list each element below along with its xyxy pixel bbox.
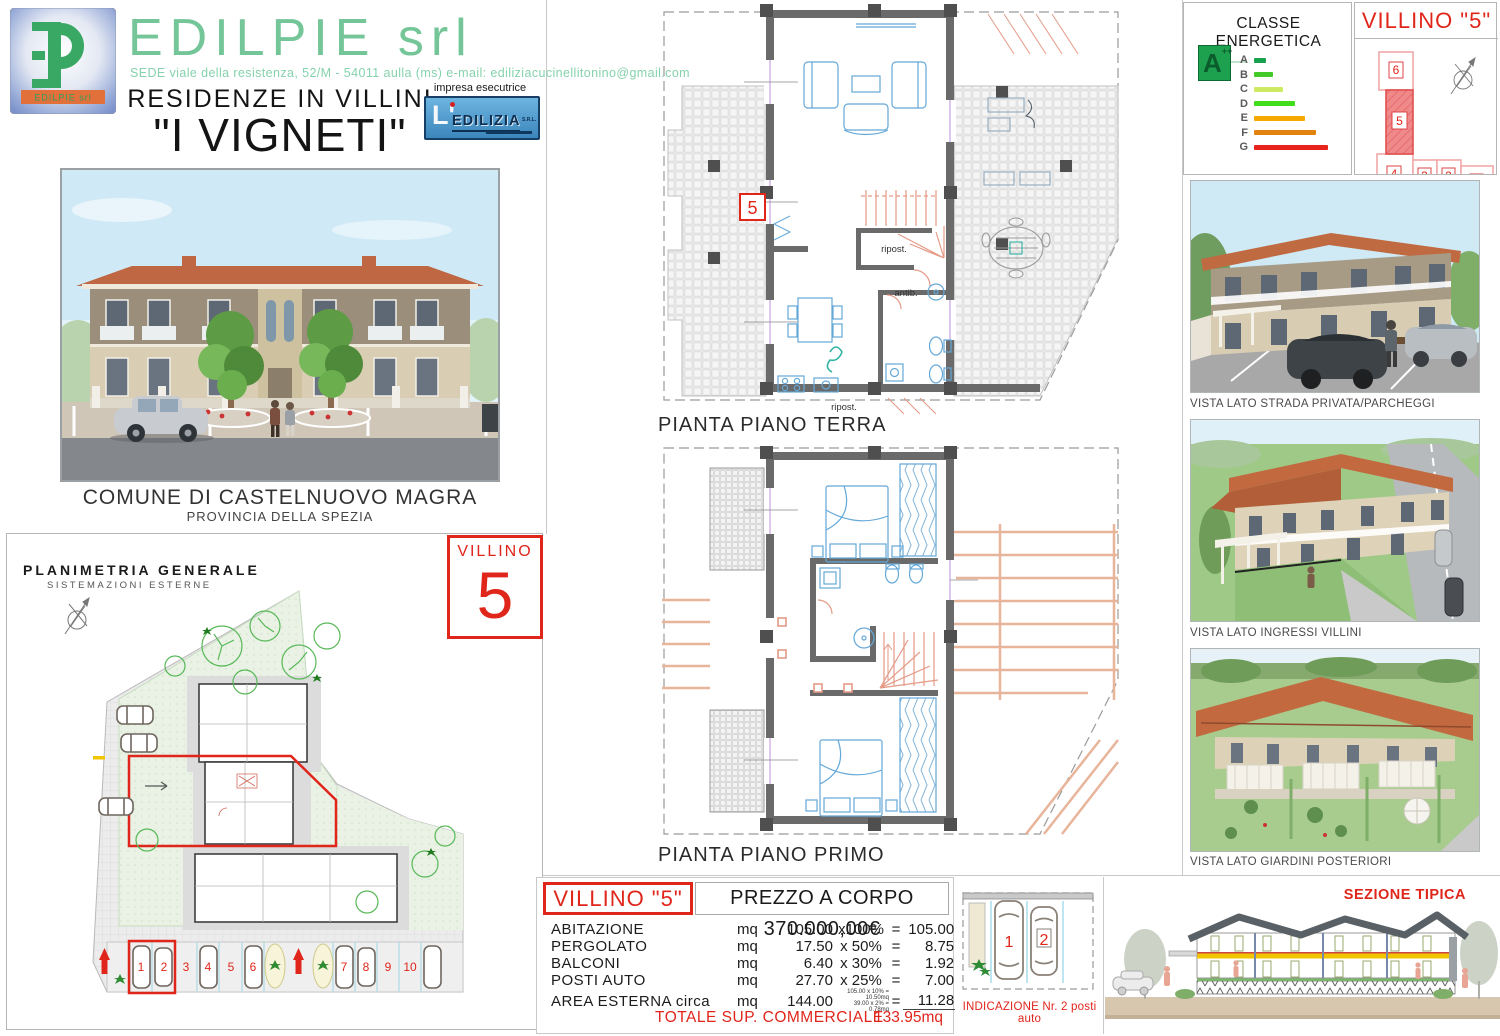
- price-row-name: BALCONI: [551, 955, 737, 972]
- price-row-mq: mq: [737, 921, 767, 938]
- first-floor-caption: PIANTA PIANO PRIMO: [658, 844, 885, 867]
- ground-floor-caption: PIANTA PIANO TERRA: [658, 414, 886, 437]
- parking-detail-panel: 1 2 INDICAZIONE Nr. 2 posti auto: [955, 877, 1104, 1034]
- ground-floor-plan-drawing: 5 ripost. antib. ripost.: [648, 0, 1148, 420]
- room-label-anteroom: antib.: [894, 288, 917, 299]
- energy-class-label: A: [1234, 54, 1248, 66]
- logo-caption: EDILPIE srl: [34, 93, 92, 103]
- render-entrances-illustration: [1191, 420, 1479, 621]
- unit-number: 6: [1393, 63, 1400, 77]
- energy-class-bar: [1254, 58, 1266, 63]
- energy-class-label: G: [1234, 141, 1248, 153]
- render-entrances-view: [1190, 419, 1480, 622]
- unit-marker: 5: [747, 198, 757, 218]
- energy-class-label: F: [1234, 127, 1248, 139]
- parking-number: 3: [183, 960, 190, 974]
- price-row-factor: x 50%: [833, 938, 889, 955]
- energy-class-bar: [1254, 145, 1328, 150]
- unit-number: 3: [1421, 169, 1428, 174]
- unit-map-title: VILLINO "5": [1355, 8, 1498, 39]
- price-row-eq: =: [889, 938, 903, 955]
- energy-row: D: [1234, 98, 1295, 110]
- energy-row: E: [1234, 112, 1305, 124]
- price-row: PERGOLATO mq 17.50 x 50% = 8.75mq: [551, 938, 975, 955]
- parking-number: 5: [228, 960, 235, 974]
- price-row-value: 17.50: [767, 938, 833, 955]
- main-render: [60, 168, 500, 482]
- contractor-name: EDILIZIA: [452, 113, 520, 132]
- parking-number: 10: [403, 960, 417, 974]
- price-row-eq: =: [889, 955, 903, 972]
- render-street-illustration: [1191, 181, 1479, 392]
- price-row-eq: =: [889, 921, 903, 938]
- company-logo-graphic: EDILPIE srl: [10, 8, 116, 114]
- render-street-view: [1190, 180, 1480, 393]
- price-row-value: 105.00: [767, 921, 833, 938]
- unit-number: 2: [1445, 169, 1452, 174]
- parking-detail-caption: INDICAZIONE Nr. 2 posti auto: [955, 1001, 1104, 1025]
- energy-class-bar: [1254, 87, 1283, 92]
- price-row-mq: mq: [737, 993, 767, 1010]
- building: [76, 256, 484, 408]
- render-street-caption: VISTA LATO STRADA PRIVATA/PARCHEGGI: [1190, 398, 1435, 410]
- contractor-suffix: S.R.L.: [522, 117, 536, 123]
- energy-class-bar: [1254, 72, 1273, 77]
- company-logo: EDILPIE srl: [10, 8, 116, 114]
- spot-number: 2: [1040, 932, 1049, 949]
- parking-number: 6: [250, 960, 257, 974]
- price-row-factor: x100%: [833, 921, 889, 938]
- energy-class-bar: [1254, 101, 1295, 106]
- energy-rating-letter: A: [1199, 48, 1222, 78]
- villino-badge: VILLINO 5: [447, 535, 543, 639]
- price-row-factor: x 30%: [833, 955, 889, 972]
- energy-row: A: [1234, 54, 1266, 66]
- villino-badge-number: 5: [450, 561, 540, 629]
- energy-class-label: D: [1234, 98, 1248, 110]
- energy-class-label: B: [1234, 69, 1248, 81]
- parking-strip: 1 2 3 4 5 6 7 8 9 10: [99, 941, 463, 993]
- price-row-name: PERGOLATO: [551, 938, 737, 955]
- site-plan-panel: PLANIMETRIA GENERALE SISTEMAZIONI ESTERN…: [6, 533, 543, 1030]
- furniture: [774, 24, 951, 392]
- price-row: BALCONI mq 6.40 x 30% = 1.92mq: [551, 955, 975, 972]
- price-row-factor: x 25%: [833, 972, 889, 989]
- price-row-name: ABITAZIONE: [551, 921, 737, 938]
- pergolas: [1227, 761, 1435, 791]
- energy-class-label: C: [1234, 83, 1248, 95]
- energy-class-bar: [1254, 130, 1316, 135]
- contractor-logo: L' EDILIZIA S.R.L.: [424, 96, 540, 140]
- building-section: [1169, 915, 1467, 994]
- price-total-label: TOTALE SUP. COMMERCIALE: [655, 1009, 884, 1027]
- contractor-strip: [486, 131, 532, 134]
- north-arrow-icon: [1451, 58, 1475, 94]
- municipality: COMUNE DI CASTELNUOVO MAGRA: [60, 486, 500, 510]
- unit-map-diagram: 6 5 4 3 2 1: [1355, 40, 1498, 174]
- room-label-storage2: ripost.: [831, 402, 857, 413]
- parking-detail-drawing: 1 2: [961, 883, 1097, 997]
- company-name: EDILPIE srl: [128, 8, 474, 68]
- parking-number: 7: [341, 960, 348, 974]
- price-row: ABITAZIONE mq 105.00 x100% = 105.00mq: [551, 921, 975, 938]
- price-row-mq: mq: [737, 938, 767, 955]
- price-row: POSTI AUTO mq 27.70 x 25% = 7.00mq: [551, 972, 975, 989]
- price-row-mq: mq: [737, 955, 767, 972]
- price-note-line1: 105.00 x 10% = 10.50mq: [847, 989, 889, 1001]
- plant: [827, 347, 842, 372]
- contractor-label: impresa esecutrice: [412, 82, 548, 94]
- energy-class-bar: [1254, 116, 1305, 121]
- render-gardens-illustration: [1191, 649, 1479, 851]
- company-address: SEDE viale della resistenza, 52/M - 5401…: [130, 66, 690, 80]
- contractor-dot: [450, 102, 455, 107]
- energy-row: F: [1234, 127, 1316, 139]
- energy-row: G: [1234, 141, 1328, 153]
- spot-number: 1: [1005, 934, 1014, 951]
- brochure-sheet: EDILPIE srl EDILPIE srl SEDE viale della…: [0, 0, 1500, 1036]
- energy-row: B: [1234, 69, 1273, 81]
- room-label-storage: ripost.: [881, 244, 907, 255]
- parking-number: 1: [138, 960, 145, 974]
- energy-row: C: [1234, 83, 1283, 95]
- energy-rating-box: A++: [1198, 45, 1231, 81]
- price-value-box: PREZZO A CORPO 370.000,00€: [695, 882, 949, 915]
- unit-number: 5: [1396, 114, 1403, 128]
- section-panel: SEZIONE TIPICA: [1105, 877, 1500, 1034]
- render-entrances-caption: VISTA LATO INGRESSI VILLINI: [1190, 627, 1362, 639]
- gate-mark: [93, 756, 105, 760]
- north-arrow-icon: [65, 598, 89, 634]
- unit-number: 4: [1391, 167, 1398, 174]
- render-gardens-view: [1190, 648, 1480, 852]
- section-caption: SEZIONE TIPICA: [1344, 887, 1466, 903]
- energy-panel: CLASSE ENERGETICA A++ A B C D E F: [1183, 2, 1352, 175]
- price-row-value: 144.00: [767, 993, 833, 1010]
- price-row-value: 27.70: [767, 972, 833, 989]
- window-gaps: [744, 60, 956, 344]
- main-render-illustration: [62, 170, 498, 480]
- first-floor-plan-drawing: [648, 440, 1148, 848]
- price-unit-box: VILLINO "5": [543, 882, 693, 915]
- divider: [536, 875, 1500, 876]
- parking-number: 8: [363, 960, 370, 974]
- price-row-mq: mq: [737, 972, 767, 989]
- price-panel: VILLINO "5" PREZZO A CORPO 370.000,00€ A…: [536, 877, 954, 1034]
- province: PROVINCIA DELLA SPEZIA: [60, 509, 500, 524]
- parking-number: 9: [385, 960, 392, 974]
- render-gardens-caption: VISTA LATO GIARDINI POSTERIORI: [1190, 856, 1391, 868]
- price-row-eq: =: [889, 972, 903, 989]
- price-row-eq: =: [889, 993, 903, 1010]
- project-title: "I VIGNETI": [80, 108, 480, 162]
- energy-class-label: E: [1234, 112, 1248, 124]
- parking-number: 4: [205, 960, 212, 974]
- price-row-value: 6.40: [767, 955, 833, 972]
- person: [1307, 566, 1314, 588]
- price-total-value: 133.95mq: [867, 1009, 943, 1027]
- price-row-name: AREA ESTERNA circa: [551, 993, 737, 1010]
- unit-map-panel: VILLINO "5": [1354, 2, 1497, 175]
- energy-rating-sup: ++: [1222, 46, 1233, 56]
- price-row-name: POSTI AUTO: [551, 972, 737, 989]
- divider: [546, 0, 547, 534]
- parking-number: 2: [161, 960, 168, 974]
